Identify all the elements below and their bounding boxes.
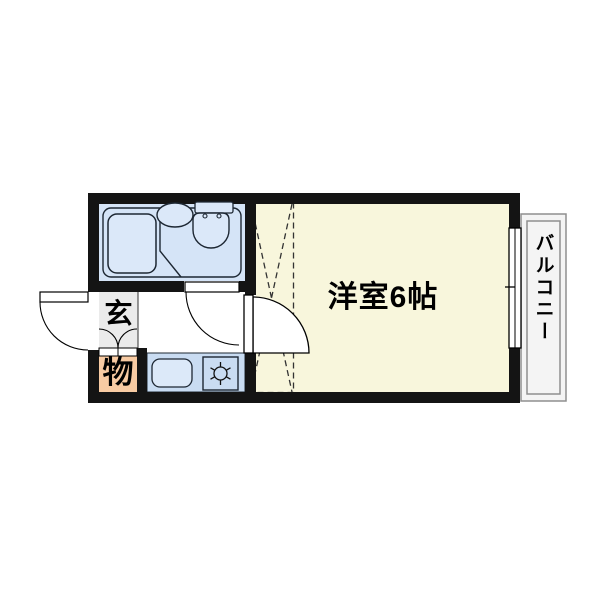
floorplan-canvas: 洋室6帖 バルコニー 玄 物	[0, 0, 600, 600]
main-room-label: 洋室6帖	[283, 281, 483, 317]
kitchen-sink-icon	[152, 359, 192, 387]
balcony-label: バルコニー	[522, 233, 562, 393]
washbasin-icon	[157, 203, 193, 227]
storage-label: 物	[99, 356, 137, 392]
bathtub-icon	[108, 214, 156, 273]
stove-burner-icon	[203, 357, 238, 390]
entrance-door-swing-icon	[40, 292, 88, 350]
entrance-label: 玄	[99, 299, 138, 331]
